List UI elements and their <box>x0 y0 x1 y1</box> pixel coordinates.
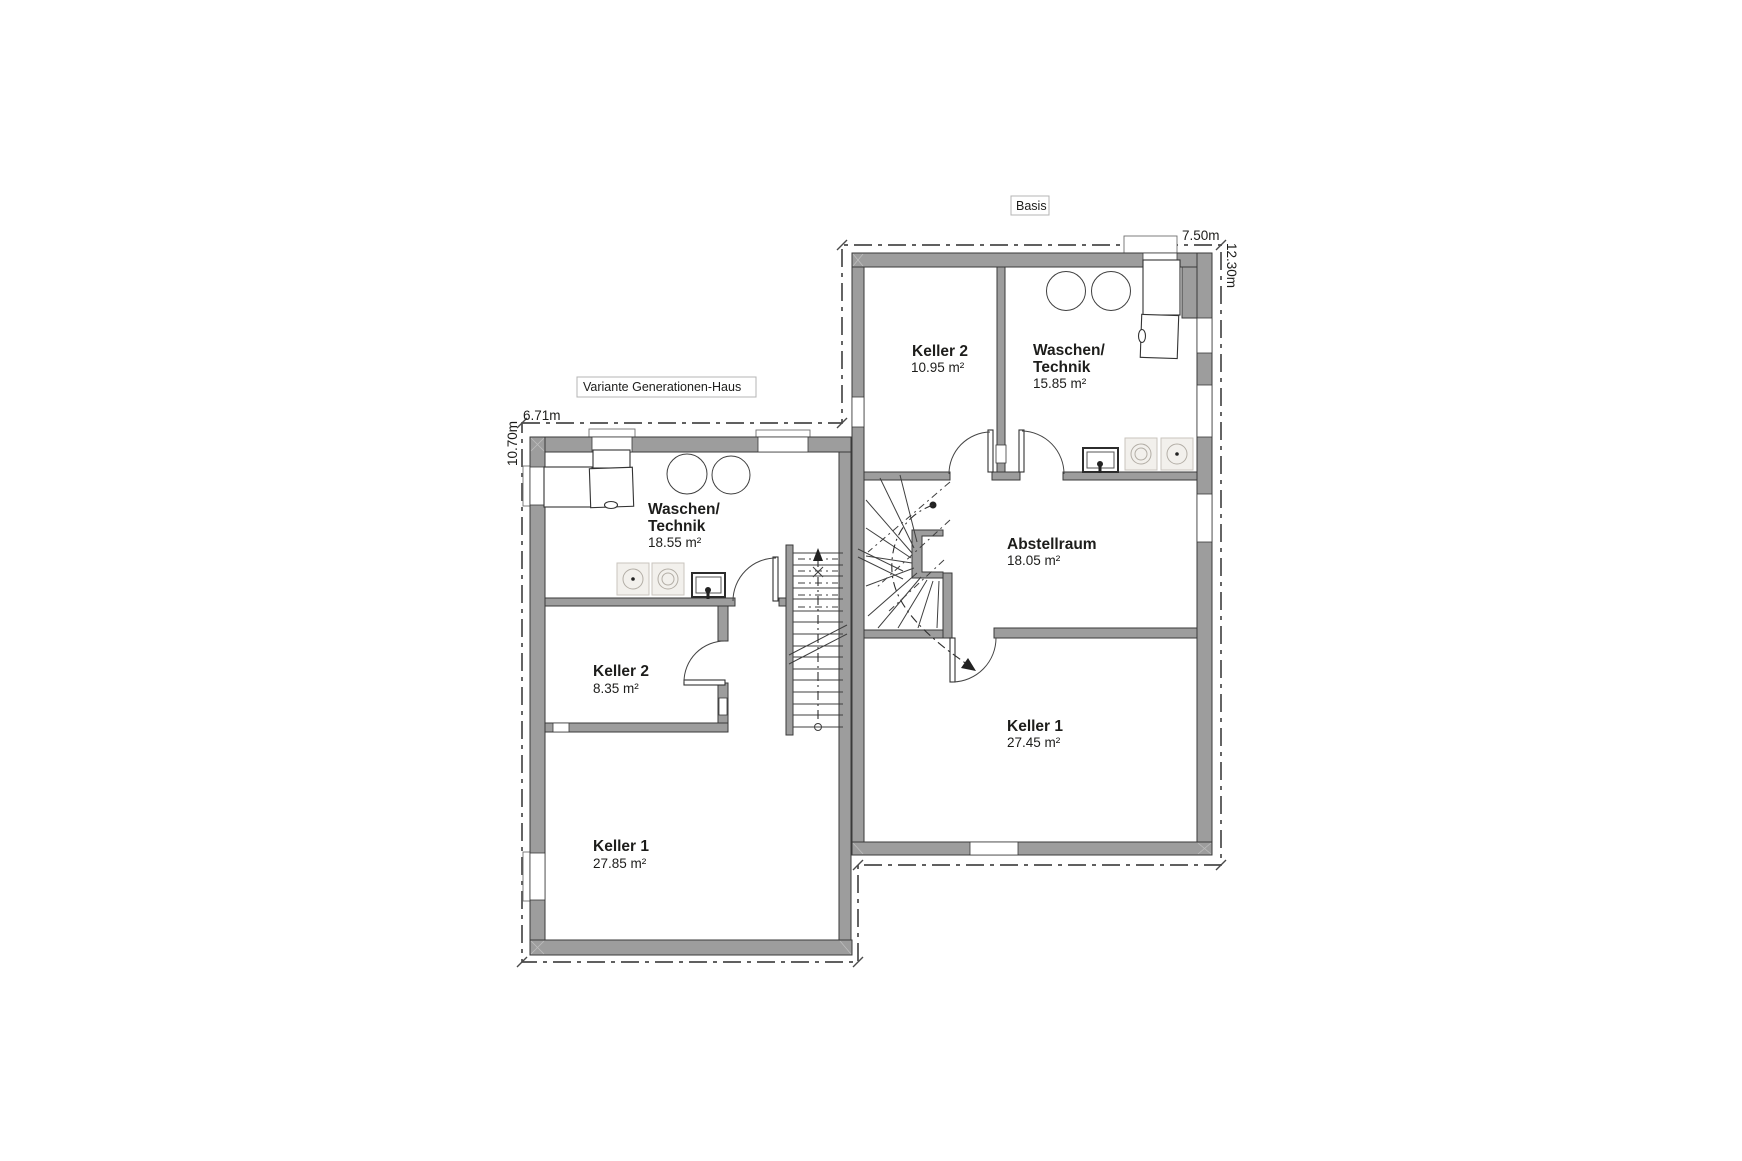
wall-stair-bottom <box>864 630 952 638</box>
room-name: Technik <box>648 518 706 535</box>
building-variante: Waschen/ Technik 18.55 m² Keller 2 8.35 … <box>523 429 852 955</box>
wall-upper-rooms-3 <box>1063 472 1197 480</box>
window <box>852 397 864 427</box>
door-swing-arc <box>1022 431 1064 474</box>
window <box>970 842 1018 855</box>
door-leaf <box>988 430 993 472</box>
boiler-valve <box>605 502 618 509</box>
cabinet <box>544 467 592 507</box>
staircase-winder <box>858 475 976 671</box>
room-name: Keller 2 <box>593 663 649 680</box>
cabinet <box>1143 260 1180 315</box>
floor-plan-canvas: Waschen/ Technik 18.55 m² Keller 2 8.35 … <box>0 0 1742 1161</box>
door-swing-arc <box>733 558 776 601</box>
wall-niche <box>553 723 569 732</box>
window <box>1197 494 1212 542</box>
sink-icon <box>1083 448 1118 473</box>
room-name: Keller 1 <box>593 838 649 855</box>
door-leaf <box>773 557 778 601</box>
window <box>1197 385 1212 437</box>
dim-variante-width: 6.71m <box>523 408 561 423</box>
room-label-basis-keller1: Keller 1 27.45 m² <box>1007 718 1063 750</box>
boiler-unit-left <box>544 450 634 509</box>
door-keller2 <box>684 641 725 685</box>
party-wall-left-side <box>839 452 851 940</box>
wall-niche <box>719 698 727 715</box>
room-area: 10.95 m² <box>911 360 965 375</box>
washing-machine-icon <box>1047 272 1086 311</box>
wall-upper-rooms-1 <box>864 472 950 480</box>
staircase-straight <box>786 545 847 735</box>
exterior-wall-left <box>852 253 864 855</box>
window <box>530 467 545 505</box>
tag-variante: Variante Generationen-Haus <box>577 377 756 397</box>
wall-waschen-bottom <box>545 598 735 606</box>
room-area: 15.85 m² <box>1033 376 1087 391</box>
room-label-var-waschen: Waschen/ Technik 18.55 m² <box>648 501 720 550</box>
dim-variante-height: 10.70m <box>505 421 520 466</box>
boiler-unit-right <box>1139 260 1181 359</box>
room-area: 18.55 m² <box>648 535 702 550</box>
wall-keller2-bottom <box>545 723 728 732</box>
room-label-var-keller2: Keller 2 8.35 m² <box>593 663 649 696</box>
room-label-basis-keller2: Keller 2 10.95 m² <box>911 343 968 375</box>
door-waschen <box>733 557 778 601</box>
room-area: 27.85 m² <box>593 856 647 871</box>
room-name: Waschen/ <box>1033 342 1105 359</box>
wall-stair-right <box>943 573 952 638</box>
door-basis-keller2 <box>949 430 993 474</box>
stair-treads <box>866 475 939 628</box>
stair-newel-wall <box>912 530 943 578</box>
room-name: Keller 1 <box>1007 718 1063 735</box>
door-basis-keller1 <box>950 638 996 682</box>
stair-wall <box>786 545 793 735</box>
dim-basis-height: 12.30m <box>1224 243 1239 288</box>
stair-treads-hidden <box>868 482 950 612</box>
room-name: Waschen/ <box>648 501 720 518</box>
room-name: Technik <box>1033 359 1091 376</box>
door-leaf <box>684 680 725 685</box>
window <box>530 853 545 900</box>
sink-icon <box>692 573 725 599</box>
hob-appliance-icon <box>652 563 684 595</box>
wall-keller2-right-upper <box>718 606 728 641</box>
stair-direction-arrow <box>813 548 823 561</box>
washing-machine-icon <box>1092 272 1131 311</box>
room-label-abstellraum: Abstellraum 18.05 m² <box>1007 536 1097 568</box>
room-area: 27.45 m² <box>1007 735 1061 750</box>
hob-appliance-icon <box>617 563 649 595</box>
washing-machine-icon <box>712 456 750 494</box>
cabinet <box>593 450 630 468</box>
building-basis: Keller 2 10.95 m² Waschen/ Technik 15.85… <box>852 236 1212 855</box>
wall-upper-rooms-2 <box>992 472 1020 480</box>
room-area: 8.35 m² <box>593 681 639 696</box>
door-leaf <box>1019 430 1024 472</box>
hob-appliance-icon <box>1161 438 1193 470</box>
exterior-wall-bottom <box>852 842 1212 855</box>
room-name: Keller 2 <box>912 343 968 360</box>
boiler-valve <box>1139 330 1146 343</box>
floor-plan-svg: Waschen/ Technik 18.55 m² Keller 2 8.35 … <box>0 0 1742 1161</box>
stair-direction-arrow <box>961 658 976 671</box>
door-swing-arc <box>949 432 990 474</box>
room-area: 18.05 m² <box>1007 553 1061 568</box>
tag-label: Basis <box>1016 199 1047 213</box>
door-swing-arc <box>953 638 996 682</box>
door-basis-waschen <box>1019 430 1064 474</box>
corner-pier <box>1182 267 1197 318</box>
washing-machine-icon <box>667 454 707 494</box>
room-name: Abstellraum <box>1007 536 1097 553</box>
dim-basis-width: 7.50m <box>1182 228 1220 243</box>
door-swing-arc <box>684 641 725 682</box>
exterior-wall-bottom <box>530 940 852 955</box>
tag-label: Variante Generationen-Haus <box>583 380 741 394</box>
room-label-basis-waschen: Waschen/ Technik 15.85 m² <box>1033 342 1105 391</box>
wall-niche <box>996 445 1006 463</box>
light-well <box>1124 236 1177 253</box>
tag-basis: Basis <box>1011 196 1049 215</box>
hob-appliance-icon <box>1125 438 1157 470</box>
window <box>1197 318 1212 353</box>
wall-abstellraum-keller1 <box>994 628 1197 638</box>
room-label-var-keller1: Keller 1 27.85 m² <box>593 838 649 871</box>
window <box>758 437 808 452</box>
door-leaf <box>950 638 955 682</box>
